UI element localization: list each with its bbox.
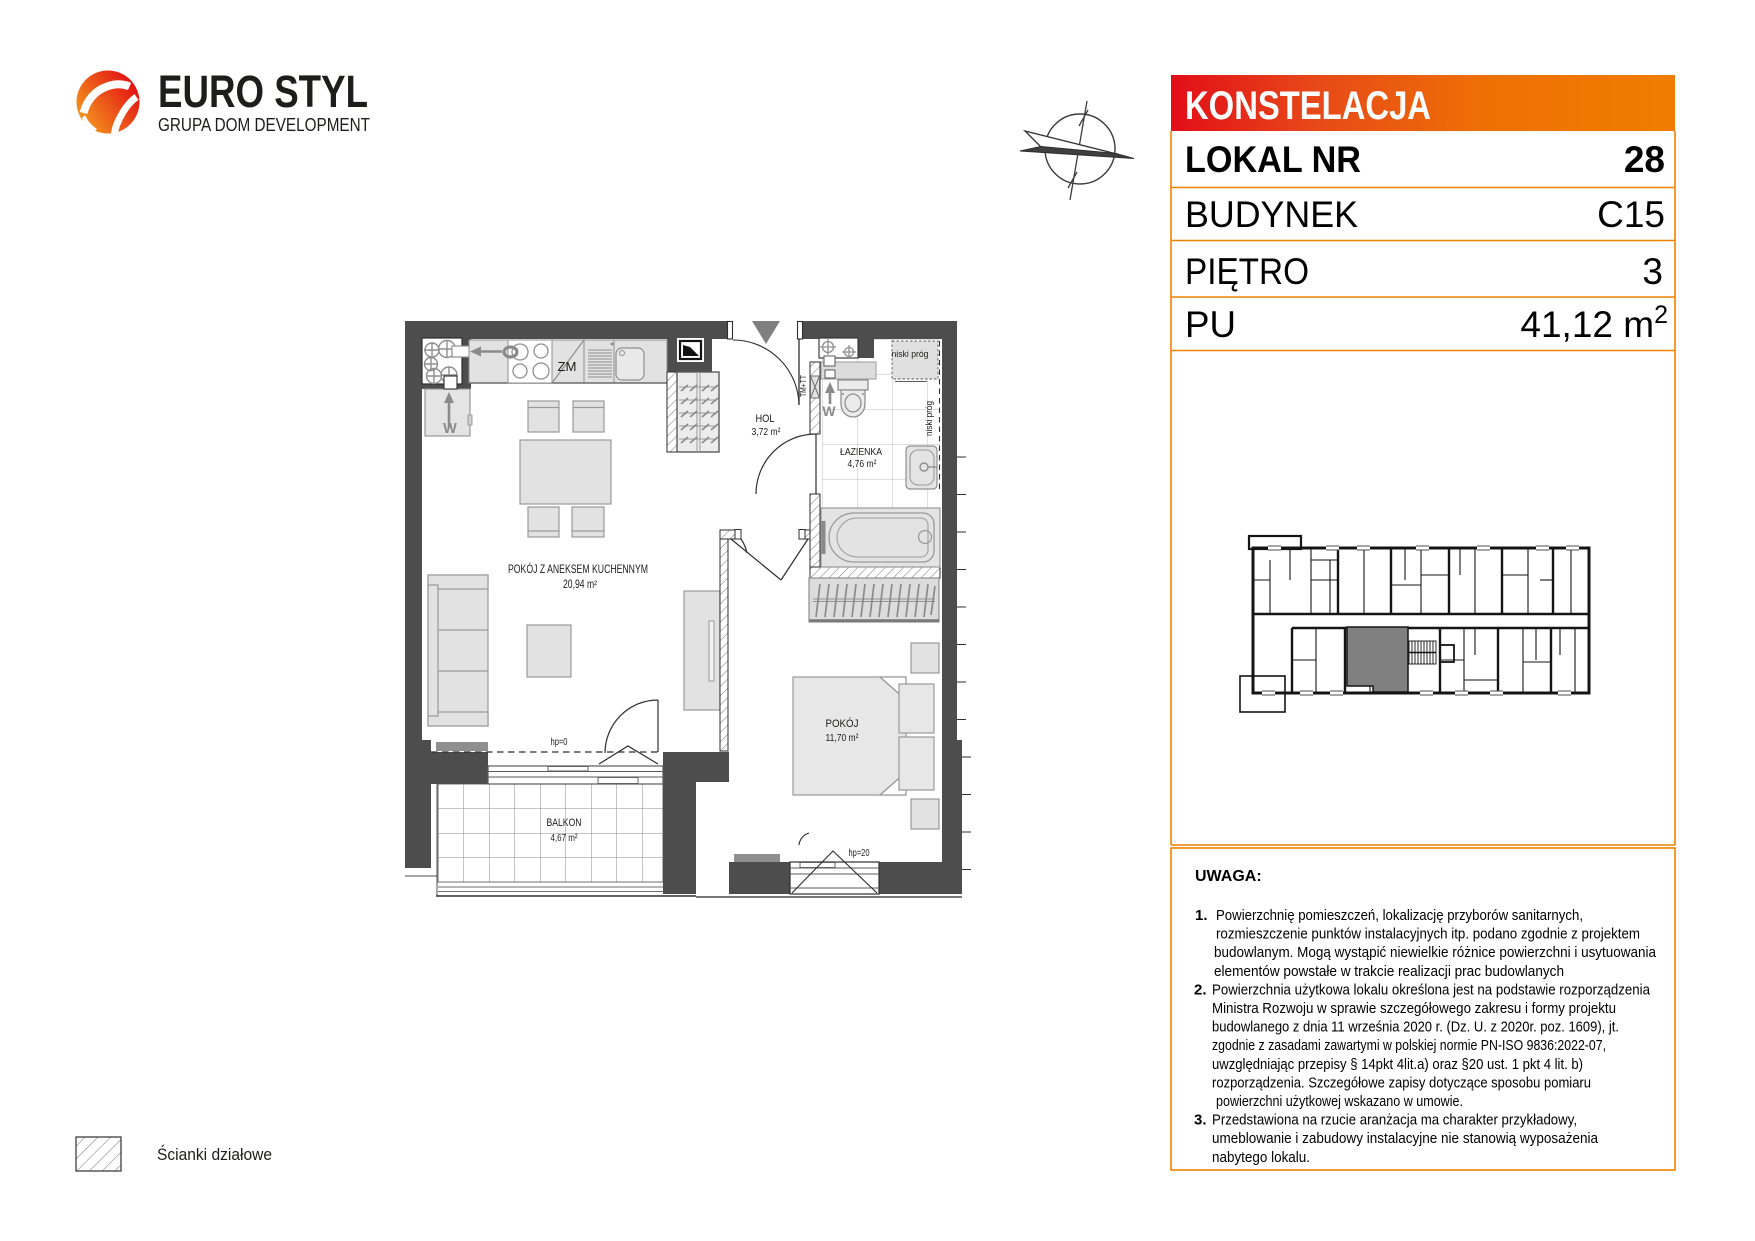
svg-text:niski próg: niski próg <box>924 401 935 436</box>
svg-text:C15: C15 <box>1597 194 1665 235</box>
svg-text:W: W <box>822 403 836 419</box>
svg-text:2.: 2. <box>1194 981 1207 998</box>
svg-text:UWAGA:: UWAGA: <box>1195 868 1262 885</box>
svg-text:uwzględniając przepisy § 14pkt: uwzględniając przepisy § 14pkt 4lit.a) o… <box>1212 1056 1583 1073</box>
svg-text:Ministra Rozwoju w sprawie szc: Ministra Rozwoju w sprawie szczegółowego… <box>1212 1000 1616 1017</box>
svg-text:umeblowanie i zabudowy instala: umeblowanie i zabudowy instalacyjne nie … <box>1212 1130 1599 1147</box>
svg-text:3: 3 <box>1642 251 1663 292</box>
svg-text:rozmieszczenie punktów instala: rozmieszczenie punktów instalacyjnych it… <box>1216 926 1640 943</box>
svg-text:POKÓJ: POKÓJ <box>826 717 859 730</box>
svg-text:11,70 m²: 11,70 m² <box>826 732 859 744</box>
svg-text:3,72 m²: 3,72 m² <box>752 426 781 438</box>
svg-text:W: W <box>443 421 457 437</box>
svg-text:LOKAL NR: LOKAL NR <box>1185 139 1361 180</box>
svg-text:HOL: HOL <box>756 413 775 425</box>
svg-text:20,94 m²: 20,94 m² <box>563 579 597 591</box>
svg-text:nabytego lokalu.: nabytego lokalu. <box>1212 1149 1310 1166</box>
svg-text:powierzchni użytkowej wskazano: powierzchni użytkowej wskazano w umowie. <box>1216 1093 1463 1110</box>
svg-text:41,12 m2: 41,12 m2 <box>1520 301 1668 345</box>
svg-text:BALKON: BALKON <box>547 817 582 829</box>
svg-text:3.: 3. <box>1194 1112 1207 1129</box>
svg-text:ŁAZIENKA: ŁAZIENKA <box>840 446 882 458</box>
svg-text:zgodnie z zasadami zawartymi w: zgodnie z zasadami zawartymi w polskiej … <box>1212 1037 1606 1054</box>
svg-text:ZM: ZM <box>558 359 577 374</box>
svg-text:hp=20: hp=20 <box>849 848 870 859</box>
svg-text:Ścianki działowe: Ścianki działowe <box>157 1145 272 1164</box>
svg-text:Przedstawiona na rzucie aranża: Przedstawiona na rzucie aranżacja ma cha… <box>1212 1112 1577 1129</box>
svg-text:Powierzchnię pomieszczeń, loka: Powierzchnię pomieszczeń, lokalizację pr… <box>1216 907 1583 924</box>
svg-text:BUDYNEK: BUDYNEK <box>1185 194 1358 235</box>
svg-text:budowlanego z dnia 11 września: budowlanego z dnia 11 września 2020 r. (… <box>1212 1019 1619 1036</box>
svg-text:POKÓJ Z ANEKSEM KUCHENNYM: POKÓJ Z ANEKSEM KUCHENNYM <box>508 561 648 576</box>
svg-text:PIĘTRO: PIĘTRO <box>1185 251 1309 292</box>
svg-text:4,76 m²: 4,76 m² <box>848 458 877 470</box>
svg-text:budowlanym. Mogą wystąpić niew: budowlanym. Mogą wystąpić niewielkie róż… <box>1214 944 1657 961</box>
svg-text:niski próg: niski próg <box>892 349 929 360</box>
svg-text:PU: PU <box>1185 304 1236 345</box>
svg-text:GRUPA DOM DEVELOPMENT: GRUPA DOM DEVELOPMENT <box>158 115 370 135</box>
svg-text:EURO STYL: EURO STYL <box>158 66 368 117</box>
svg-text:TM+TT: TM+TT <box>799 375 808 397</box>
svg-text:hp=0: hp=0 <box>551 737 568 748</box>
svg-text:1.: 1. <box>1195 907 1208 924</box>
svg-text:KONSTELACJA: KONSTELACJA <box>1185 84 1431 128</box>
svg-text:28: 28 <box>1624 139 1665 180</box>
svg-text:4,67 m²: 4,67 m² <box>551 832 578 844</box>
svg-text:rozporządzenia. Szczegółowe za: rozporządzenia. Szczegółowe zapisy dotyc… <box>1212 1074 1591 1091</box>
svg-text:elementów powstałe w trakcie r: elementów powstałe w trakcie realizacji … <box>1214 963 1564 980</box>
svg-text:Powierzchnia użytkowa lokalu o: Powierzchnia użytkowa lokalu określona j… <box>1212 981 1651 998</box>
